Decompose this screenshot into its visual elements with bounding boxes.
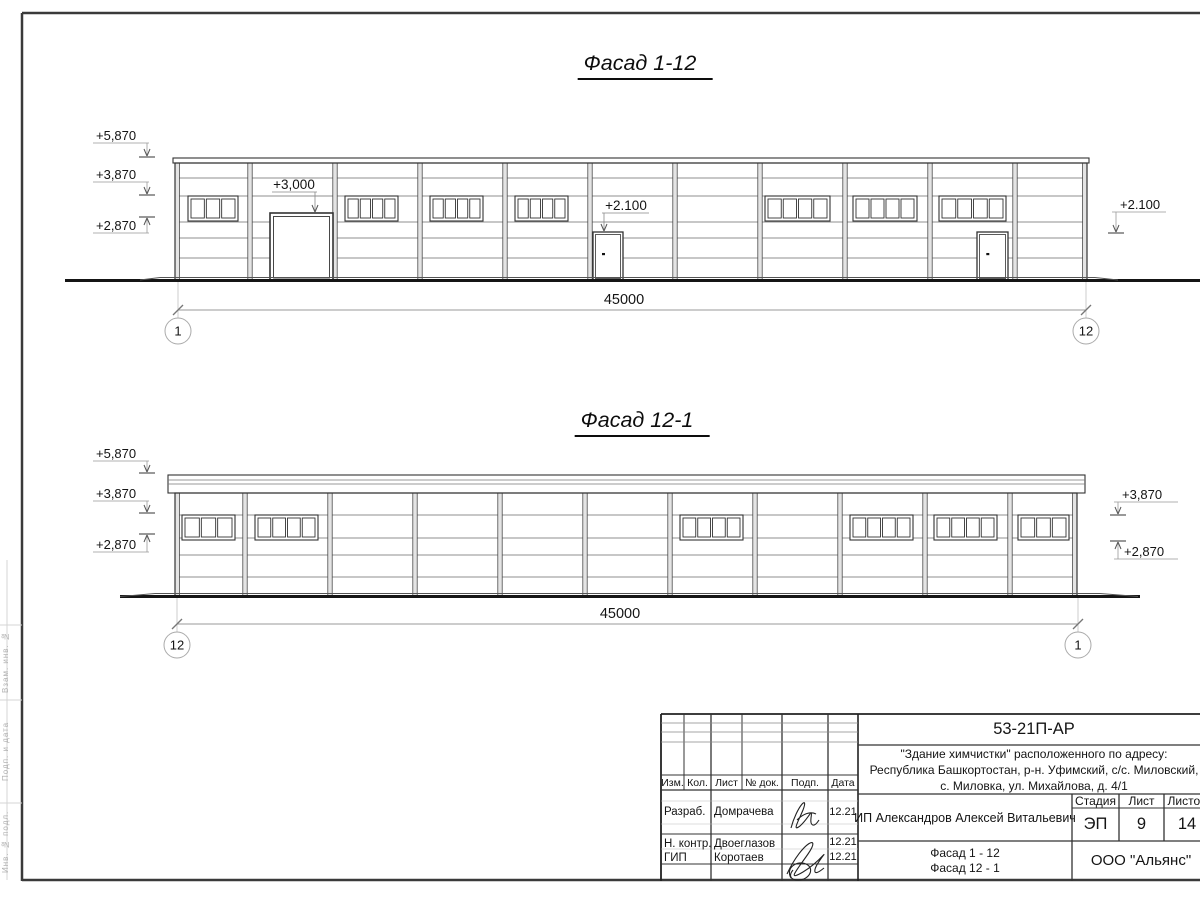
window-pane: [799, 199, 812, 218]
window-pane: [273, 518, 286, 537]
row-name-gip: Коротаев: [714, 850, 780, 865]
axis-label: 12: [1079, 324, 1093, 339]
window-pane: [1021, 518, 1035, 537]
titleblock-document-code: 53-21П-АР: [858, 714, 1200, 745]
column: [583, 493, 587, 596]
window-pane: [901, 199, 914, 218]
column: [498, 493, 502, 596]
window-pane: [856, 199, 869, 218]
window-pane: [1052, 518, 1066, 537]
arrowhead: [147, 505, 150, 512]
column: [1013, 163, 1017, 280]
stage-label: Стадия: [1072, 794, 1119, 808]
col-header-list: Лист: [711, 775, 742, 790]
arrowhead: [144, 149, 147, 156]
drawing-sheet: +3,000+2.100+5,870+3,870+2,870+2.1004500…: [0, 0, 1200, 900]
window-pane: [814, 199, 827, 218]
entry-door: [977, 232, 1008, 280]
sheet-label: Лист: [1119, 794, 1164, 808]
arrowhead: [147, 535, 150, 542]
side-strip-label-podp: Подп. и дата: [0, 702, 11, 801]
column: [1008, 493, 1012, 596]
side-strip-label-vzam: Взам. инв. №: [0, 627, 11, 698]
column: [928, 163, 932, 280]
leader-label: +3,000: [273, 177, 315, 192]
sheet-number: 9: [1119, 808, 1164, 841]
entry-door: [593, 232, 623, 280]
window-pane: [958, 199, 972, 218]
titleblock-sheet-title: Фасад 1 - 12 Фасад 12 - 1: [858, 841, 1072, 880]
column: [413, 493, 417, 596]
column: [175, 493, 179, 596]
sheets-label: Листов: [1164, 794, 1200, 808]
column: [328, 493, 332, 596]
window-pane: [206, 199, 219, 218]
column: [1083, 163, 1087, 280]
window-pane: [768, 199, 781, 218]
facade-wall-fill: [175, 493, 1077, 596]
window-pane: [981, 518, 994, 537]
column: [243, 493, 247, 596]
sheet-title-line-1: Фасад 1 - 12: [930, 846, 1000, 861]
arrowhead: [144, 535, 147, 542]
axis-label: 1: [174, 324, 181, 339]
window-pane: [360, 199, 370, 218]
window-pane: [555, 199, 565, 218]
window-pane: [698, 518, 711, 537]
row-role-nkontr: Н. контр.: [664, 836, 714, 851]
elevation-mark-label: +2.100: [1120, 197, 1160, 212]
window-pane: [191, 199, 204, 218]
window-pane: [989, 199, 1003, 218]
col-header-podp: Подп.: [782, 775, 828, 790]
window-pane: [974, 199, 988, 218]
column: [758, 163, 762, 280]
column: [418, 163, 422, 280]
row-date-nkontr: 12.21: [828, 834, 858, 849]
window-pane: [218, 518, 232, 537]
elevation-mark-label: +5,870: [96, 446, 136, 461]
window-pane: [288, 518, 301, 537]
titleblock-project-address: "Здание химчистки" расположенного по адр…: [858, 745, 1200, 794]
titleblock-company: ООО "Альянс": [1072, 841, 1200, 880]
arrowhead: [144, 505, 147, 512]
window-pane: [868, 518, 881, 537]
address-line-3: с. Миловка, ул. Михайлова, д. 4/1: [940, 778, 1128, 794]
arrowhead: [1116, 225, 1119, 232]
window-pane: [530, 199, 540, 218]
window-pane: [937, 518, 950, 537]
address-line-1: "Здание химчистки" расположенного по адр…: [900, 746, 1167, 762]
row-role-gip: ГИП: [664, 850, 710, 865]
elevation-mark-label: +2,870: [96, 218, 136, 233]
window-pane: [348, 199, 358, 218]
axis-label: 12: [170, 638, 184, 653]
address-line-2: Республика Башкортостан, р-н. Уфимский, …: [870, 762, 1199, 778]
window-pane: [373, 199, 383, 218]
parapet-cap: [173, 158, 1089, 163]
column: [843, 163, 847, 280]
window-pane: [853, 518, 866, 537]
window-pane: [897, 518, 910, 537]
window-pane: [886, 199, 899, 218]
column: [753, 493, 757, 596]
elevation-mark-label: +2,870: [96, 537, 136, 552]
dimension-label: 45000: [600, 606, 640, 622]
arrowhead: [144, 465, 147, 472]
window-pane: [942, 199, 956, 218]
window-pane: [185, 518, 199, 537]
facade-1-title: Фасад 1-12: [578, 51, 713, 80]
col-header-kol: Кол.: [684, 775, 711, 790]
arrowhead: [147, 187, 150, 194]
arrowhead: [1115, 507, 1118, 514]
window-pane: [871, 199, 884, 218]
elevation-mark-label: +5,870: [96, 128, 136, 143]
window-pane: [952, 518, 965, 537]
window-pane: [883, 518, 896, 537]
window-pane: [727, 518, 740, 537]
column: [838, 493, 842, 596]
window-pane: [783, 199, 796, 218]
col-header-izm: Изм.: [661, 775, 684, 790]
arrowhead: [1118, 542, 1121, 549]
window-pane: [222, 199, 235, 218]
window-pane: [302, 518, 315, 537]
window-pane: [445, 199, 455, 218]
arrowhead: [147, 149, 150, 156]
column: [668, 493, 672, 596]
elevation-mark-label: +3,870: [1122, 487, 1162, 502]
row-date-gip: 12.21: [828, 849, 858, 864]
column: [175, 163, 179, 280]
window-pane: [967, 518, 980, 537]
window-pane: [470, 199, 480, 218]
dimension-label: 45000: [604, 292, 644, 308]
side-strip-label-inv: Инв. № подл.: [0, 805, 11, 878]
column: [923, 493, 927, 596]
window-pane: [1037, 518, 1051, 537]
arrowhead: [147, 465, 150, 472]
arrowhead: [1118, 507, 1121, 514]
window-pane: [543, 199, 553, 218]
column: [673, 163, 677, 280]
window-pane: [683, 518, 696, 537]
sheet-title-line-2: Фасад 12 - 1: [930, 861, 1000, 876]
arrowhead: [1115, 542, 1118, 549]
facade-2-title: Фасад 12-1: [575, 408, 710, 437]
window-pane: [433, 199, 443, 218]
sheets-total: 14: [1164, 808, 1200, 841]
signature-kontr: [787, 843, 824, 880]
col-header-data: Дата: [828, 775, 858, 790]
elevation-mark-label: +3,870: [96, 486, 136, 501]
arrowhead: [147, 218, 150, 225]
row-role-razrab: Разраб.: [664, 804, 710, 819]
leader-label: +2.100: [605, 198, 647, 213]
window-pane: [258, 518, 271, 537]
column: [1073, 493, 1077, 596]
column: [503, 163, 507, 280]
window-pane: [458, 199, 468, 218]
gate-door: [270, 213, 333, 280]
row-name-razrab: Домрачева: [714, 804, 780, 819]
window-pane: [713, 518, 726, 537]
titleblock-client: ИП Александров Алексей Витальевич: [858, 794, 1072, 841]
row-name-nkontr: Двоеглазов: [714, 836, 780, 851]
window-pane: [201, 518, 215, 537]
elevation-mark-label: +3,870: [96, 167, 136, 182]
arrowhead: [144, 187, 147, 194]
column: [588, 163, 592, 280]
stage-value: ЭП: [1072, 808, 1119, 841]
window-pane: [385, 199, 395, 218]
col-header-ndok: № док.: [742, 775, 782, 790]
arrowhead: [144, 218, 147, 225]
window-pane: [518, 199, 528, 218]
axis-label: 1: [1074, 638, 1081, 653]
elevation-mark-label: +2,870: [1124, 544, 1164, 559]
arrowhead: [1113, 225, 1116, 232]
column: [248, 163, 252, 280]
